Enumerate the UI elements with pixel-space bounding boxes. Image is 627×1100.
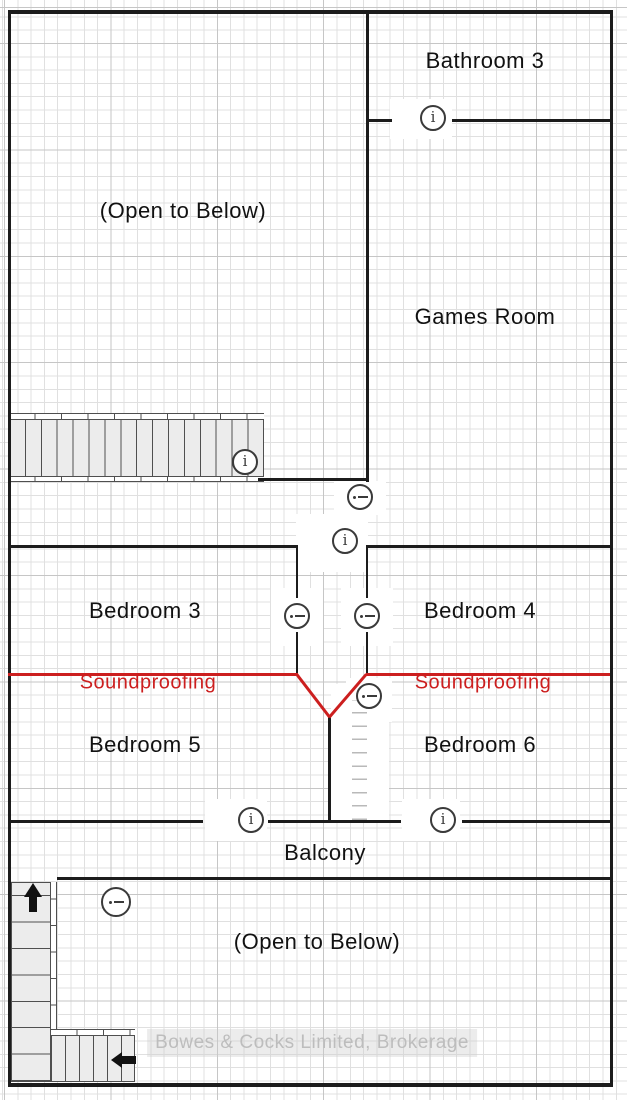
collapse-icon-dot (353, 496, 356, 499)
collapse-icon-bedroom3-door[interactable] (284, 603, 310, 629)
collapse-icon-bedroom4-door[interactable] (354, 603, 380, 629)
wall (8, 545, 298, 548)
room-label-bedroom6: Bedroom 6 (424, 732, 536, 758)
info-icon-glyph: i (249, 812, 254, 827)
info-icon-glyph: i (343, 533, 348, 548)
wall (268, 820, 401, 823)
info-icon-bathroom-door[interactable]: i (420, 105, 446, 131)
wall (462, 820, 610, 823)
soundproofing-label-right: Soundproofing (415, 672, 552, 695)
room-label-open-to-below-top: (Open to Below) (100, 198, 266, 224)
up-arrow-icon (29, 896, 37, 912)
soundproofing-line-diagonal (296, 673, 331, 717)
collapse-icon-dot (362, 695, 365, 698)
wall (258, 478, 369, 481)
collapse-icon-hall-top[interactable] (347, 484, 373, 510)
room-label-bedroom4: Bedroom 4 (424, 598, 536, 624)
collapse-icon-bedroom6-closet[interactable] (356, 683, 382, 709)
info-icon-balcony-door-right[interactable]: i (430, 807, 456, 833)
up-arrow-icon (24, 883, 42, 897)
wall (8, 820, 203, 823)
collapse-icon-dash (365, 615, 375, 618)
info-icon-balcony-door-left[interactable]: i (238, 807, 264, 833)
room-label-bedroom3: Bedroom 3 (89, 598, 201, 624)
room-label-open-to-below-bottom: (Open to Below) (234, 929, 400, 955)
room-label-bedroom5: Bedroom 5 (89, 732, 201, 758)
left-arrow-icon (121, 1056, 136, 1064)
info-icon-glyph: i (243, 454, 248, 469)
info-icon-glyph: i (441, 812, 446, 827)
collapse-icon-dot (360, 615, 363, 618)
closet-hatch (352, 700, 367, 820)
wall (328, 716, 331, 822)
staircase-upper-rail (8, 476, 264, 482)
floor-plan-canvas: i i i i i Bathroom 3 (Open to Below) Gam… (0, 0, 627, 1100)
room-label-bathroom3: Bathroom 3 (426, 48, 545, 74)
room-label-games-room: Games Room (415, 304, 556, 330)
wall (296, 632, 298, 676)
room-label-balcony: Balcony (284, 840, 366, 866)
collapse-icon-lower-stairs[interactable] (101, 887, 131, 917)
staircase-upper (8, 419, 264, 478)
info-icon-hall-door[interactable]: i (332, 528, 358, 554)
collapse-icon-dash (367, 695, 377, 698)
wall (452, 119, 610, 122)
wall (366, 548, 368, 598)
collapse-icon-dash (358, 496, 368, 499)
brokerage-watermark: Bowes & Cocks Limited, Brokerage (147, 1029, 477, 1057)
wall (8, 1083, 613, 1087)
collapse-icon-dash (114, 901, 124, 904)
collapse-icon-dot (290, 615, 293, 618)
staircase-lower-vertical (11, 882, 51, 1082)
wall (366, 10, 369, 482)
staircase-lower-rail (50, 882, 57, 1032)
soundproofing-label-left: Soundproofing (80, 672, 217, 695)
wall (366, 632, 368, 676)
info-icon-glyph: i (431, 110, 436, 125)
collapse-icon-dot (109, 901, 112, 904)
wall (296, 548, 298, 598)
wall (610, 10, 613, 1087)
wall (8, 10, 613, 14)
collapse-icon-dash (295, 615, 305, 618)
wall (57, 877, 613, 880)
wall (368, 119, 392, 122)
info-icon-upper-stairs[interactable]: i (232, 449, 258, 475)
wall (366, 545, 612, 548)
